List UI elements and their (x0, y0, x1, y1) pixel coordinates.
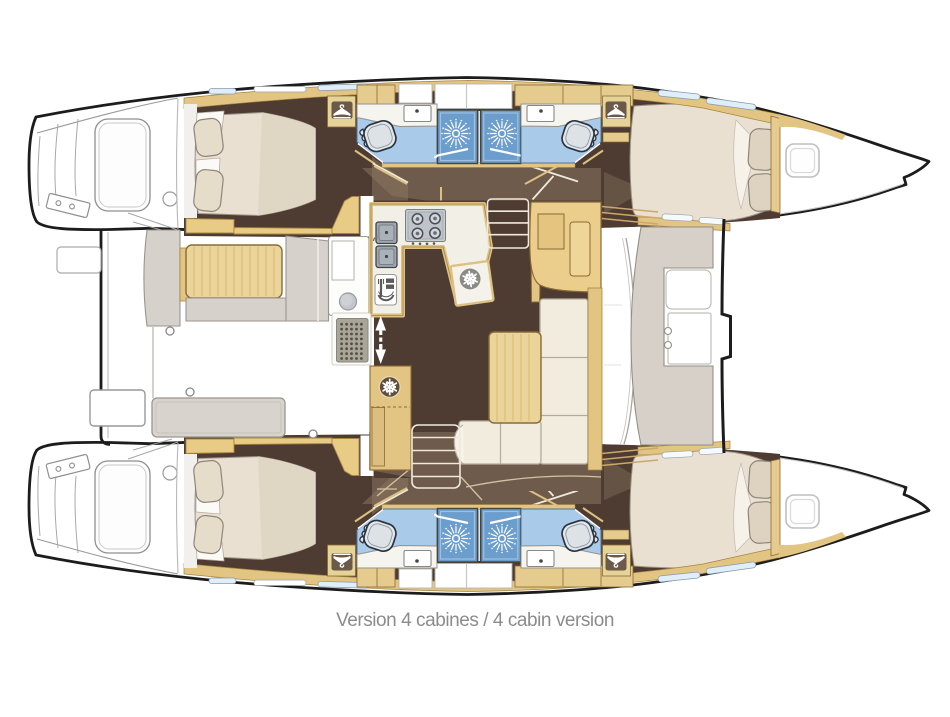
svg-text:Version 4 cabines / 4 cabin ve: Version 4 cabines / 4 cabin version (336, 610, 614, 631)
